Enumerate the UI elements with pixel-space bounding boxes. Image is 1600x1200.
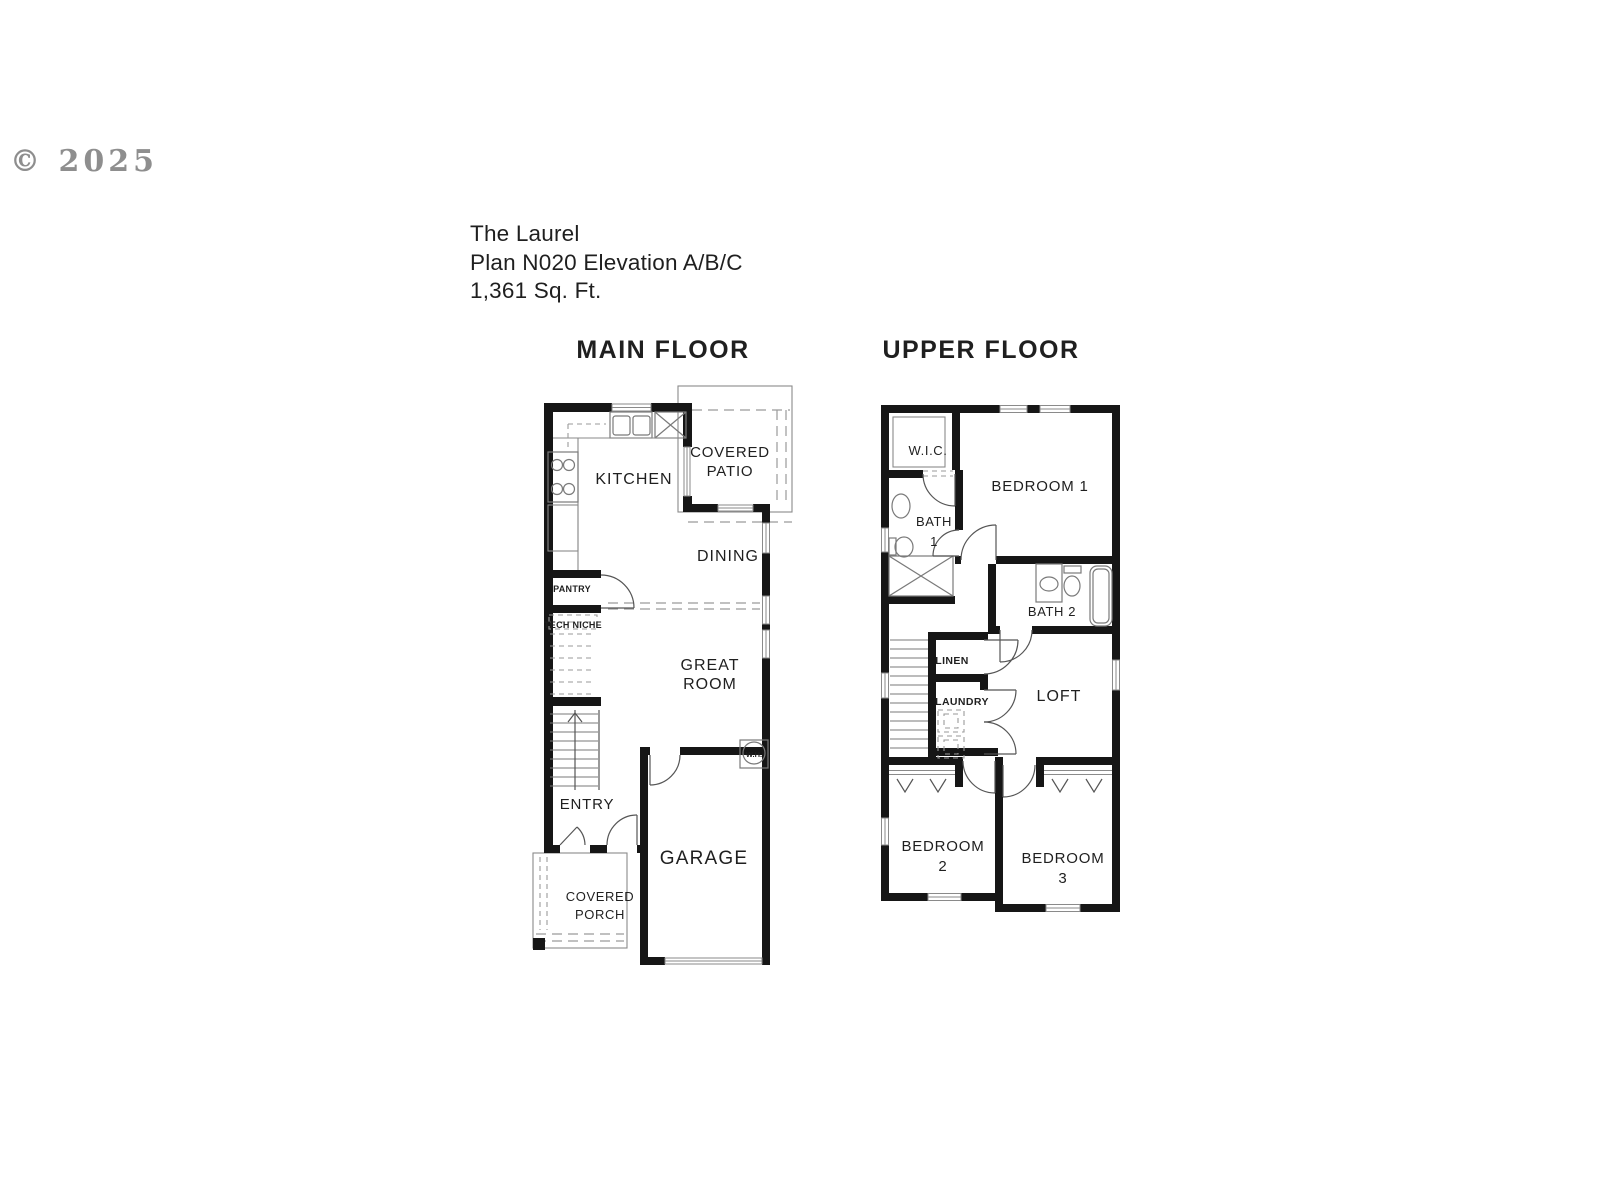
room-label-great-room-1: GREAT [681,657,740,674]
room-label-bath1-2: 1 [930,534,938,549]
room-label-entry: ENTRY [560,796,615,813]
upper-floor-heading: UPPER FLOOR [882,336,1079,364]
room-label-linen: LINEN [935,655,969,667]
room-label-tech-niche: TECH NICHE [544,620,602,630]
upper-stairs [890,640,928,748]
water-heater-label: W.H. [746,750,762,759]
room-label-covered-patio-2: PATIO [707,463,754,480]
room-label-great-room-2: ROOM [683,676,737,693]
kitchen-fixtures [548,412,686,570]
bath1-fixtures [889,494,953,596]
bath2-toilet [1064,576,1080,596]
room-label-kitchen: KITCHEN [595,471,672,488]
room-label-bath2: BATH 2 [1028,604,1076,619]
bath1-toilet [895,537,913,557]
room-label-bedroom1: BEDROOM 1 [991,478,1088,495]
room-label-bath1-1: BATH [916,514,952,529]
bedroom3-closet [1044,771,1112,793]
room-label-loft: LOFT [1037,688,1082,705]
room-label-garage: GARAGE [660,848,749,869]
upper-floor-plan: UPPER FLOOR [881,336,1120,912]
bath1-sink [892,494,910,518]
main-floor-heading: MAIN FLOOR [576,336,749,364]
room-label-covered-patio-1: COVERED [690,444,770,461]
room-label-laundry: LAUNDRY [935,696,989,708]
room-label-bedroom3-1: BEDROOM [1021,850,1104,867]
room-label-bedroom2-1: BEDROOM [901,838,984,855]
floor-plan-drawing: MAIN FLOOR [0,0,1600,1200]
main-floor-plan: MAIN FLOOR [533,336,792,965]
room-label-wic: W.I.C. [909,443,948,458]
room-label-dining: DINING [697,548,759,565]
floor-plan-sheet: © 2025 The Laurel Plan N020 Elevation A/… [0,0,1600,1200]
room-label-covered-porch-2: PORCH [575,907,625,922]
room-label-covered-porch-1: COVERED [566,889,635,904]
bath2-sink [1040,577,1058,591]
bedroom2-closet [889,771,955,793]
room-label-bedroom2-2: 2 [938,858,947,875]
room-label-pantry: PANTRY [553,584,591,594]
room-label-bedroom3-2: 3 [1058,870,1067,887]
